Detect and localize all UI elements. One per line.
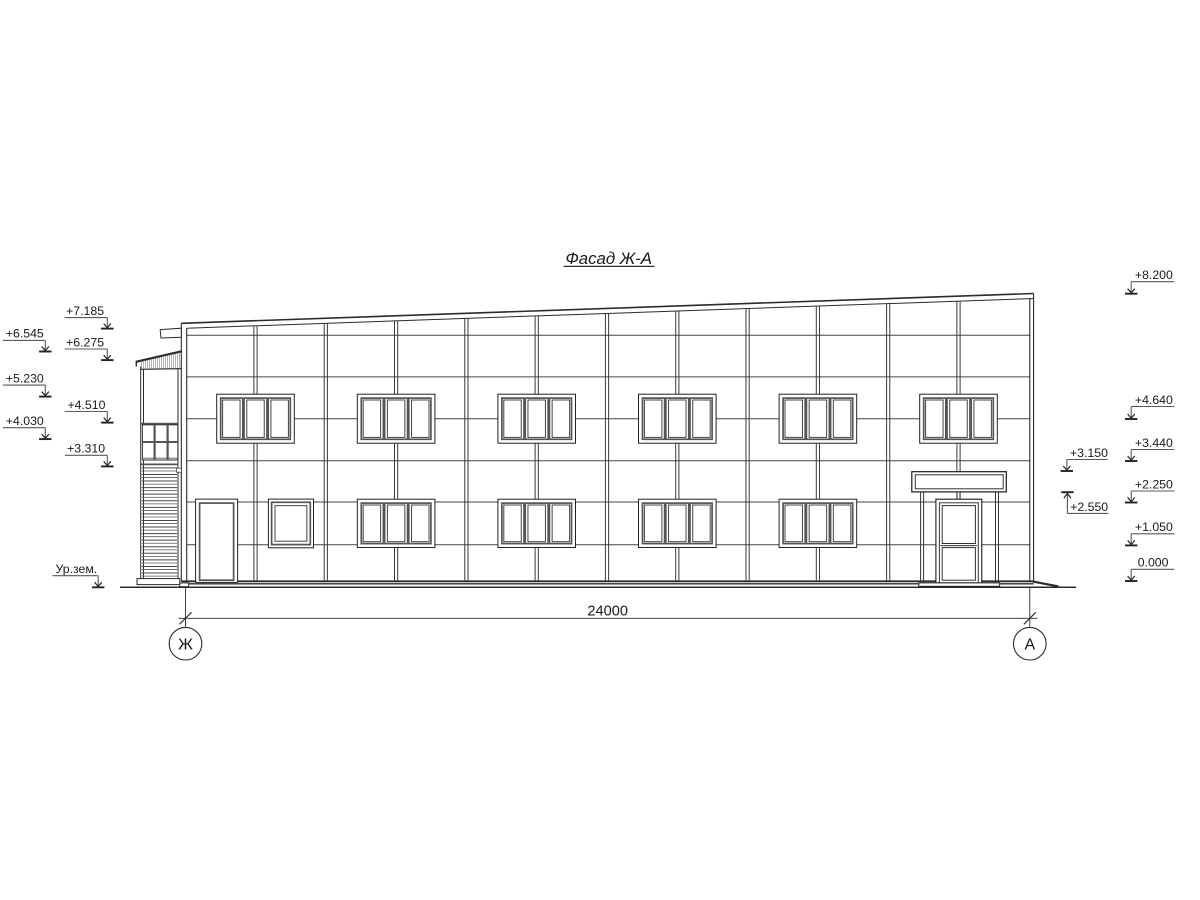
svg-text:+4.030: +4.030 bbox=[6, 414, 44, 428]
svg-text:+6.275: +6.275 bbox=[66, 335, 104, 349]
svg-text:+8.200: +8.200 bbox=[1135, 268, 1173, 282]
svg-text:+3.440: +3.440 bbox=[1135, 436, 1173, 450]
svg-text:+5.230: +5.230 bbox=[6, 371, 44, 385]
svg-text:Ж: Ж bbox=[178, 636, 193, 653]
svg-text:+4.640: +4.640 bbox=[1135, 393, 1173, 407]
svg-text:+2.250: +2.250 bbox=[1135, 477, 1173, 491]
svg-text:+2.550: +2.550 bbox=[1070, 500, 1108, 514]
svg-text:Ур.зем.: Ур.зем. bbox=[56, 562, 98, 576]
svg-text:+6.545: +6.545 bbox=[6, 327, 44, 341]
svg-text:24000: 24000 bbox=[587, 604, 628, 620]
svg-text:+3.150: +3.150 bbox=[1070, 446, 1108, 460]
svg-text:А: А bbox=[1024, 637, 1035, 654]
svg-text:+1.050: +1.050 bbox=[1135, 520, 1173, 534]
svg-text:+3.310: +3.310 bbox=[67, 442, 105, 456]
svg-text:0.000: 0.000 bbox=[1138, 556, 1169, 570]
svg-text:+4.510: +4.510 bbox=[68, 398, 106, 412]
svg-text:+7.185: +7.185 bbox=[66, 304, 104, 318]
svg-text:Фасад Ж-А: Фасад Ж-А bbox=[565, 249, 652, 268]
